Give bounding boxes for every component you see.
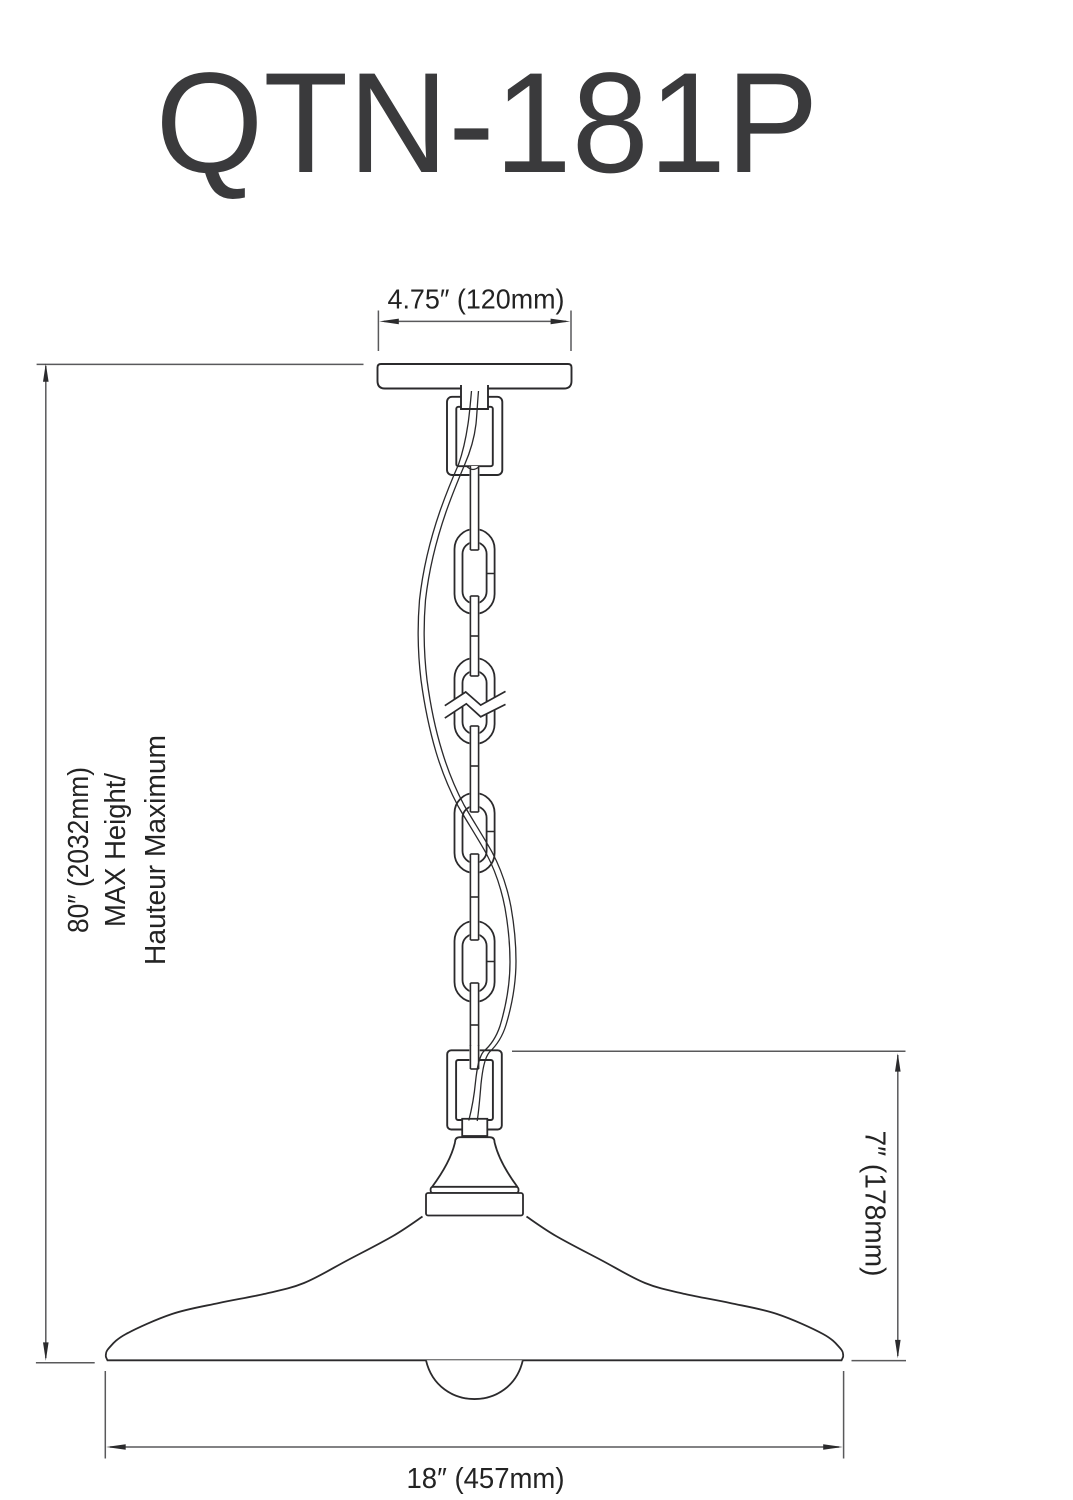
svg-text:4.75″ (120mm): 4.75″ (120mm)	[388, 284, 565, 315]
svg-text:80″ (2032mm): 80″ (2032mm)	[63, 767, 95, 933]
svg-text:QTN-181P: QTN-181P	[156, 44, 819, 203]
svg-text:Hauteur Maximum: Hauteur Maximum	[140, 735, 172, 965]
svg-text:18″ (457mm): 18″ (457mm)	[407, 1463, 565, 1495]
svg-text:MAX Height/: MAX Height/	[100, 773, 132, 927]
svg-text:7″ (178mm): 7″ (178mm)	[859, 1131, 891, 1277]
